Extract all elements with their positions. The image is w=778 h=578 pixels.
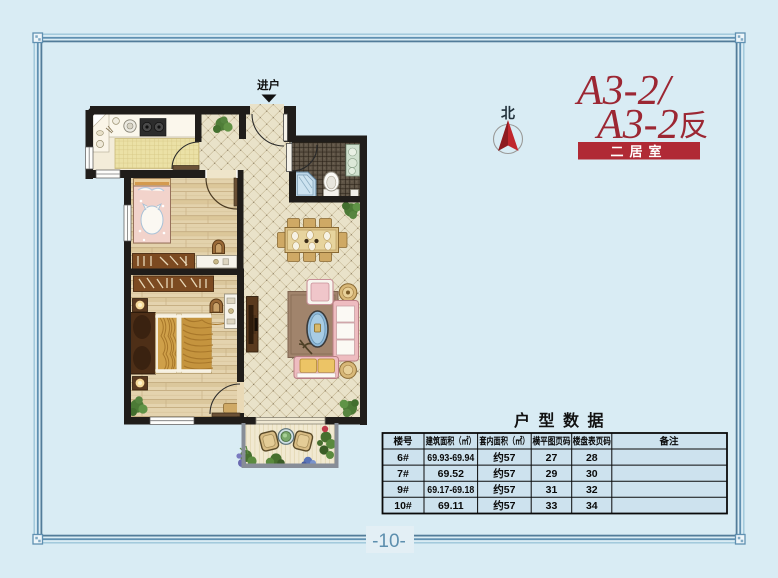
svg-text:套内面积（㎡）: 套内面积（㎡） [479, 436, 530, 448]
svg-text:北: 北 [501, 105, 515, 121]
svg-text:34: 34 [586, 500, 598, 512]
svg-text:33: 33 [546, 500, 558, 512]
svg-text:69.93-69.94: 69.93-69.94 [427, 452, 474, 464]
svg-text:69.52: 69.52 [438, 468, 464, 480]
svg-text:9#: 9# [397, 484, 409, 496]
svg-text:10#: 10# [394, 500, 412, 512]
svg-text:27: 27 [546, 452, 558, 464]
svg-text:建筑面积（㎡）: 建筑面积（㎡） [425, 436, 476, 448]
svg-text:7#: 7# [397, 468, 409, 480]
svg-text:约57: 约57 [493, 451, 515, 464]
svg-text:-10-: -10- [372, 531, 406, 552]
svg-text:二居室: 二居室 [610, 144, 667, 159]
svg-text:28: 28 [586, 452, 598, 464]
svg-text:32: 32 [586, 484, 598, 496]
svg-text:69.11: 69.11 [438, 500, 464, 512]
svg-text:69.17-69.18: 69.17-69.18 [427, 484, 474, 496]
svg-text:楼号: 楼号 [393, 436, 413, 448]
svg-text:约57: 约57 [493, 499, 515, 512]
svg-text:进户: 进户 [257, 78, 280, 92]
svg-text:横平图页码: 横平图页码 [533, 436, 571, 448]
svg-text:约57: 约57 [493, 467, 515, 480]
svg-text:楼盘表页码: 楼盘表页码 [573, 436, 611, 448]
svg-text:31: 31 [546, 484, 558, 496]
svg-text:29: 29 [546, 468, 558, 480]
svg-text:30: 30 [586, 468, 598, 480]
svg-text:约57: 约57 [493, 483, 515, 496]
svg-text:备注: 备注 [658, 436, 679, 448]
svg-text:户型数据: 户型数据 [514, 411, 612, 430]
svg-text:6#: 6# [397, 452, 409, 464]
